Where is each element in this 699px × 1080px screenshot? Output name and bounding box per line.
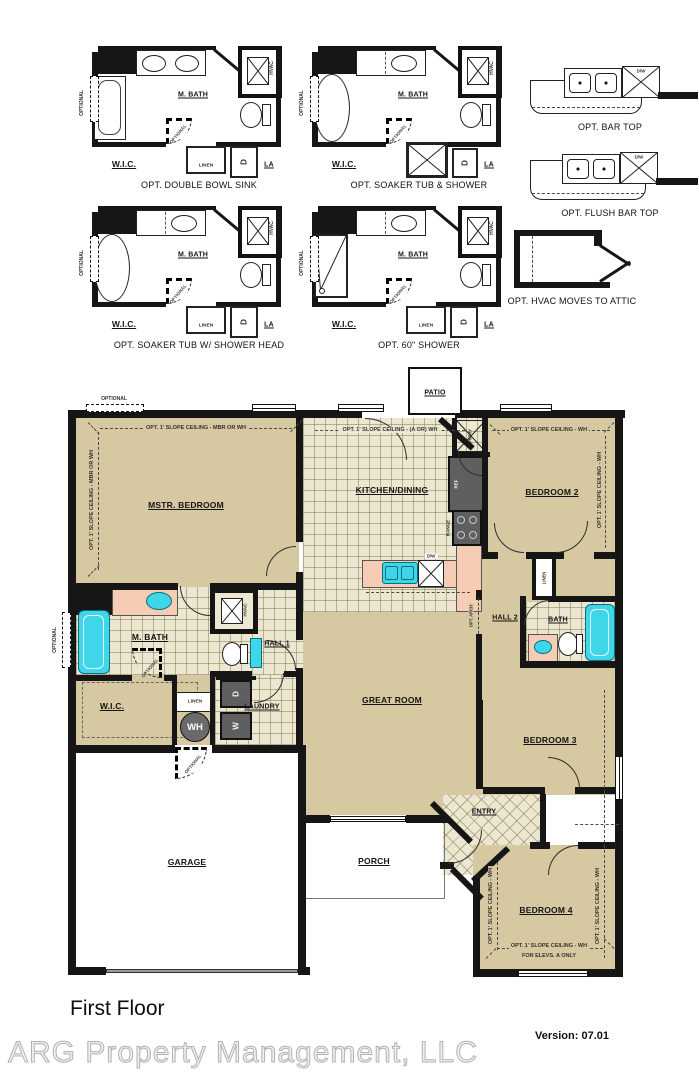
linen-label: LINEN: [186, 700, 204, 705]
bedroom3-label: BEDROOM 3: [523, 735, 576, 745]
wall: [68, 583, 178, 590]
toilet: [222, 642, 242, 666]
bedroom4-label: BEDROOM 4: [519, 905, 572, 915]
hall1-label: HALL 1: [264, 641, 290, 648]
sink-bowl: [567, 159, 589, 179]
ceiling-note: OPT. 1' SLOPE CEILING - (A OR) WH: [341, 427, 440, 433]
angled-wall: [213, 48, 241, 72]
burner: [469, 531, 477, 539]
hvac-unit: [247, 57, 269, 85]
ceiling-note: FOR ELEVS. A ONLY: [520, 953, 578, 959]
slope-ceiling-dash: [98, 432, 99, 570]
hvac-label: HVAC: [244, 601, 249, 618]
option-flush-bar-top: D/W OPT. FLUSH BAR TOP: [528, 150, 698, 220]
toilet: [240, 102, 262, 128]
hall2-label: HALL 2: [492, 615, 518, 622]
ref-label: REF: [454, 478, 459, 491]
dryer-label: D: [460, 317, 469, 327]
option-bar-top: D/W OPT. BAR TOP: [528, 66, 698, 134]
wall: [76, 675, 132, 681]
burner: [457, 531, 465, 539]
wall: [526, 552, 564, 559]
laundry-cut-label: LA: [264, 162, 274, 169]
optional-window: [310, 76, 319, 122]
wall: [448, 142, 501, 147]
linen-closet: [186, 306, 226, 334]
wall: [296, 668, 303, 751]
hall-bath-tub: [585, 604, 615, 661]
master-tub: [78, 610, 110, 674]
tub-basin: [83, 615, 104, 669]
wall: [312, 302, 386, 307]
burner: [469, 516, 477, 524]
soaker-tub: [314, 74, 350, 142]
option-caption: OPT. DOUBLE BOWL SINK: [141, 180, 257, 190]
great-room-floor: [303, 612, 480, 815]
angled-wall: [433, 48, 461, 72]
toilet-tank: [262, 264, 271, 286]
linen-label: LINEN: [197, 324, 215, 329]
version-label: Version: 07.01: [535, 1030, 609, 1042]
range: [452, 510, 482, 546]
dryer-label: D: [232, 689, 241, 699]
sink-bowl: [391, 215, 417, 232]
wall: [210, 671, 252, 677]
optional-window: [86, 404, 144, 412]
toilet-tank: [240, 644, 248, 664]
hvac-unit: [247, 217, 269, 245]
option-caption: OPT. 60" SHOWER: [378, 340, 460, 350]
sink-bowl: [593, 159, 615, 179]
wall: [530, 842, 550, 849]
hvac-label: HVAC: [489, 59, 495, 77]
wall: [658, 92, 698, 99]
option-caption: OPT. BAR TOP: [578, 122, 642, 132]
vanity-counter: [356, 210, 426, 236]
sink-bowl: [175, 55, 199, 72]
dw-label: D/W: [635, 69, 648, 74]
wall: [92, 302, 166, 307]
bath-label: BATH: [548, 617, 568, 624]
wall: [483, 787, 545, 794]
wall: [548, 596, 623, 602]
option-caption: OPT. HVAC MOVES TO ATTIC: [508, 296, 637, 306]
linen-closet: [186, 146, 226, 174]
counter-dash: [532, 193, 644, 194]
great-room-label: GREAT ROOM: [362, 695, 422, 705]
washer-label: W: [232, 720, 241, 732]
door-leaf: [599, 261, 631, 283]
sink-bowl: [595, 73, 617, 93]
garage-door: [106, 969, 298, 973]
wall: [482, 552, 498, 559]
window: [518, 970, 588, 977]
counter-divider: [165, 212, 166, 234]
pedestal-sink: [250, 638, 262, 668]
optional-window: [90, 76, 99, 122]
kitchen-sink: [382, 562, 418, 584]
wall: [532, 559, 536, 600]
toilet-tank: [482, 104, 491, 126]
closet-wall: [98, 206, 136, 234]
sink-bowl: [142, 55, 166, 72]
ceiling-note: OPT. 1' SLOPE CEILING - WH: [488, 866, 494, 946]
watermark: ARG Property Management, LLC: [8, 1036, 478, 1070]
wall: [210, 675, 215, 745]
laundry-cut-label: LA: [484, 322, 494, 329]
closet-wall: [318, 206, 356, 234]
linen-closet: [406, 306, 446, 334]
shower: [406, 142, 448, 178]
window: [500, 404, 552, 412]
window: [252, 404, 296, 412]
wall: [476, 590, 482, 600]
wall: [303, 815, 330, 823]
garage-label: GARAGE: [168, 857, 207, 867]
toilet: [558, 632, 578, 656]
sink-bowl: [401, 566, 414, 580]
mbath-label: M. BATH: [178, 252, 208, 259]
mbath-sink: [146, 592, 172, 610]
slope-ceiling-dash: [497, 862, 498, 950]
wall: [540, 794, 546, 844]
water-heater: WH: [180, 712, 210, 742]
mbath-label: M. BATH: [398, 92, 428, 99]
wall: [476, 634, 482, 700]
wall: [298, 745, 306, 975]
ceiling-note: OPT. 1' SLOPE CEILING - MBR OR WH: [89, 448, 95, 552]
dryer-label: D: [240, 317, 249, 327]
porch-label: PORCH: [358, 856, 390, 866]
opt-arch-dash: [478, 598, 479, 634]
slope-ceiling-dash: [605, 436, 606, 548]
toilet: [460, 262, 482, 288]
wall: [514, 282, 610, 288]
window: [330, 816, 406, 822]
opt-arch-note: OPT. ARCH: [469, 603, 474, 629]
tub-basin: [590, 609, 609, 656]
wall: [514, 230, 600, 236]
sink-bowl: [391, 55, 417, 72]
opt-dash: [575, 824, 619, 825]
toilet: [460, 102, 482, 128]
range-label: RANGE: [446, 518, 451, 538]
window: [615, 756, 623, 800]
optional-label: OPTIONAL: [99, 396, 129, 402]
window: [338, 404, 384, 412]
hvac-label: HVAC: [269, 219, 275, 237]
laundry-cut-label: LA: [264, 322, 274, 329]
toilet: [240, 262, 262, 288]
ceiling-note: OPT. 1' SLOPE CEILING - WH: [509, 427, 589, 433]
vanity-counter: [136, 50, 206, 76]
optional-window: [310, 236, 319, 282]
counter-dash: [532, 107, 640, 108]
linen-label: LINEN: [417, 324, 435, 329]
wall: [473, 876, 480, 977]
wall: [92, 142, 166, 147]
wic-label: W.I.C.: [100, 701, 124, 711]
laundry-cut-label: LA: [484, 162, 494, 169]
wall: [312, 142, 386, 147]
optional-window: [62, 612, 71, 668]
laundry-label: LAUNDRY: [244, 704, 279, 711]
hvac-unit: [467, 217, 489, 245]
double-sink: [564, 68, 622, 98]
ceiling-note: OPT. 1' SLOPE CEILING - WH: [509, 943, 589, 949]
dryer-label: D: [240, 157, 249, 167]
wall: [276, 46, 281, 146]
linen-label: LINEN: [542, 570, 547, 587]
wall: [68, 745, 175, 753]
wic-label: W.I.C.: [332, 319, 356, 329]
wall: [615, 410, 623, 977]
mbath-label: M. BATH: [178, 92, 208, 99]
toilet-tank: [482, 264, 491, 286]
wic-label: W.I.C.: [112, 319, 136, 329]
wic-label: W.I.C.: [332, 159, 356, 169]
patio-label: PATIO: [424, 390, 445, 397]
toilet-tank: [262, 104, 271, 126]
dash-line: [532, 236, 533, 282]
hvac-label: HVAC: [489, 219, 495, 237]
double-sink: [562, 154, 620, 184]
mbath-label: M. BATH: [132, 632, 168, 642]
optional-note: OPTIONAL: [299, 88, 305, 118]
ceiling-note: OPT. 1' SLOPE CEILING - WH: [595, 866, 601, 946]
burner: [457, 516, 465, 524]
toilet-tank: [576, 634, 583, 654]
dishwasher: [418, 560, 444, 587]
option-caption: OPT. SOAKER TUB & SHOWER: [351, 180, 488, 190]
hvac-unit: [221, 598, 243, 624]
wall: [594, 552, 623, 559]
wall: [284, 671, 303, 677]
soaker-tub: [94, 234, 130, 302]
wall: [656, 178, 698, 185]
wall: [520, 661, 623, 668]
sink-bowl: [569, 73, 591, 93]
kitchen-label: KITCHEN/DINING: [356, 485, 429, 495]
sink-bowl: [171, 215, 197, 232]
wall: [68, 410, 76, 975]
angled-wall: [433, 208, 461, 232]
master-bedroom-label: MSTR. BEDROOM: [148, 500, 224, 510]
option-60in-shower: OPTIONAL HVAC M. BATH OPTIONAL LINEN D L…: [308, 198, 530, 358]
wall: [172, 675, 177, 745]
entry-label: ENTRY: [472, 809, 496, 816]
floor-plan-sheet: OPTIONAL HVAC M. BATH OPTIONAL LINEN D L…: [0, 0, 699, 1080]
corner-shower: [314, 234, 348, 298]
hvac-label: HVAC: [269, 59, 275, 77]
wall: [496, 46, 501, 146]
dryer-label: D: [461, 158, 470, 168]
optional-note: OPTIONAL: [79, 248, 85, 278]
option-soaker-tub-shower: OPTIONAL HVAC M. BATH OPTIONAL D LA W.I.…: [308, 38, 530, 198]
optional-window: [90, 236, 99, 282]
wall: [520, 596, 526, 668]
option-double-bowl-sink: OPTIONAL HVAC M. BATH OPTIONAL LINEN D L…: [88, 38, 310, 198]
shower-drain: [319, 288, 325, 294]
tub-basin: [98, 80, 121, 135]
bedroom2-label: BEDROOM 2: [525, 487, 578, 497]
closet-wall: [98, 46, 136, 74]
wall: [482, 418, 488, 558]
wic-label: W.I.C.: [112, 159, 136, 169]
wall: [578, 842, 623, 849]
dw-label: D/W: [425, 554, 438, 559]
sink-bowl: [385, 566, 398, 580]
hvac-unit: [467, 57, 489, 85]
option-caption: OPT. SOAKER TUB W/ SHOWER HEAD: [114, 340, 284, 350]
optional-note: OPTIONAL: [79, 88, 85, 118]
closet-wall: [318, 46, 356, 74]
optional-label: OPTIONAL: [52, 625, 58, 655]
bath-sink: [534, 640, 552, 654]
ceiling-note: OPT. 1' SLOPE CEILING - MBR OR WH: [144, 425, 248, 431]
counter-divider: [385, 212, 386, 234]
wall: [210, 583, 303, 590]
hvac-closet: [210, 588, 258, 634]
option-caption: OPT. FLUSH BAR TOP: [561, 208, 658, 218]
wall: [296, 418, 303, 542]
option-soaker-tub-shower-head: OPTIONAL HVAC M. BATH OPTIONAL LINEN D L…: [88, 198, 310, 358]
vanity-counter: [356, 50, 426, 76]
angled-wall: [213, 208, 241, 232]
wall: [212, 745, 306, 753]
wall: [296, 590, 303, 640]
dw-label: D/W: [633, 155, 646, 160]
linen-label: LINEN: [197, 164, 215, 169]
mbath-label: M. BATH: [398, 252, 428, 259]
ceiling-note: OPT. 1' SLOPE CEILING - WH: [597, 450, 603, 530]
wall: [552, 559, 556, 600]
wall: [276, 206, 281, 306]
optional-note: OPTIONAL: [299, 248, 305, 278]
counter-divider: [385, 52, 386, 74]
vanity-counter: [136, 210, 206, 236]
option-hvac-attic: OPT. HVAC MOVES TO ATTIC: [500, 228, 690, 310]
counter-dash: [366, 592, 470, 593]
pantry-label: PNTRY: [468, 427, 473, 445]
sheet-title: First Floor: [70, 997, 165, 1021]
wall: [476, 700, 483, 789]
wall: [514, 230, 520, 288]
